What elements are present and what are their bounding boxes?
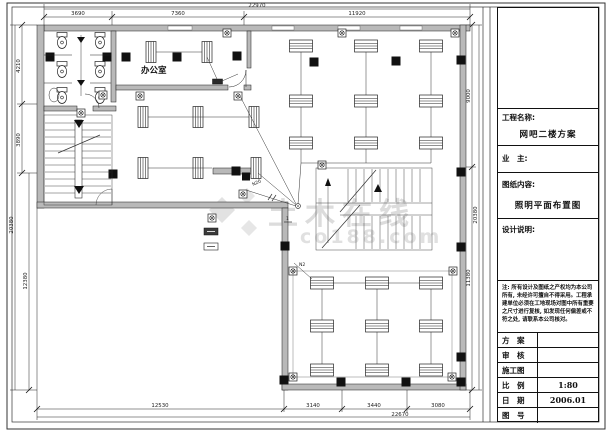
- row-scheme-label: 方 案: [498, 333, 538, 347]
- toilet-symbol: [57, 33, 67, 49]
- fluorescent-lamp: [420, 320, 443, 332]
- fluorescent-lamp: [420, 277, 443, 289]
- wall-left: [37, 25, 44, 208]
- ceiling-light-icon: [239, 190, 247, 198]
- dim-left-3: 12380: [23, 272, 29, 290]
- row-review-label: 审 核: [498, 348, 538, 362]
- row-scale: 比 例 1:80: [498, 378, 598, 393]
- fluorescent-lamp: [311, 364, 334, 376]
- row-scheme-value: [538, 333, 598, 347]
- project-name: 网吧二楼方案: [502, 128, 594, 140]
- flow-arrow: [77, 37, 85, 43]
- column: [242, 173, 250, 181]
- doors: [229, 70, 246, 87]
- dim-bottom-2: 3140: [306, 403, 320, 409]
- owner-cell: 业 主:: [498, 146, 598, 173]
- ceiling-light-icon: [99, 91, 107, 99]
- fluorescent-lamp: [355, 137, 378, 149]
- row-scheme: 方 案: [498, 333, 598, 348]
- dim-bottom-1: 12530: [151, 403, 169, 409]
- row-scale-value: 1:80: [538, 378, 598, 392]
- wall-bottom: [282, 384, 466, 390]
- row-construction-drawing: 施工图: [498, 363, 598, 378]
- toilet-symbol: [95, 33, 105, 49]
- wall-toilet-right: [111, 31, 116, 102]
- dim-right-1: 9000: [466, 89, 472, 103]
- toilet-symbol: [95, 62, 105, 78]
- stairs-left: [44, 115, 112, 205]
- fluorescent-lamp: [366, 320, 389, 332]
- fluorescent-lamp: [290, 137, 313, 149]
- column: [232, 167, 241, 176]
- ceiling-light-icon: [318, 161, 326, 169]
- column: [457, 243, 466, 252]
- fluorescent-lamp: [355, 40, 378, 52]
- dim-top-1: 3690: [71, 11, 85, 17]
- column: [337, 378, 346, 387]
- fluorescent-lamp: [311, 277, 334, 289]
- column: [233, 52, 242, 61]
- column: [109, 170, 118, 179]
- dim-left-2: 3890: [16, 133, 22, 147]
- fluorescent-lamp: [146, 42, 156, 63]
- fluorescent-lamp: [290, 95, 313, 107]
- toilet-symbol: [57, 88, 67, 104]
- fluorescent-lamp: [251, 158, 261, 179]
- dim-total-top: 22970: [248, 3, 266, 9]
- wire-label: N2: [299, 262, 305, 268]
- column: [457, 378, 466, 387]
- ceiling-light-icon: [208, 214, 216, 222]
- fluorescent-lamp: [366, 364, 389, 376]
- project-label: 工程名称:: [502, 112, 594, 123]
- fluorescent-lamp: [420, 137, 443, 149]
- circuit-number: 1: [286, 216, 289, 222]
- wall-toilet-bottom: [93, 106, 116, 111]
- flow-arrow: [77, 80, 85, 86]
- fluorescent-lamp: [420, 364, 443, 376]
- room-label-office: 办公室: [141, 65, 167, 76]
- wire-label: N20: [251, 178, 262, 187]
- wall-office-bottom: [116, 85, 228, 90]
- design-notes-label: 设计说明:: [502, 224, 594, 235]
- wall-office-right: [247, 31, 251, 68]
- row-date: 日 期 2006.01: [498, 393, 598, 408]
- design-notes-cell: 设计说明:: [498, 219, 598, 281]
- column: [457, 353, 466, 362]
- column: [173, 53, 182, 62]
- row-date-label: 日 期: [498, 393, 538, 407]
- ceiling-light-icon: [77, 109, 85, 117]
- ceiling-light-icon: [136, 92, 144, 100]
- dim-bottom-4: 3080: [431, 403, 445, 409]
- fluorescent-lamp: [202, 42, 212, 63]
- dim-top-2: 7360: [171, 11, 185, 17]
- row-scale-label: 比 例: [498, 378, 538, 392]
- fluorescent-lamp: [311, 320, 334, 332]
- door-arc: [229, 70, 246, 87]
- dim-total-left: 20380: [9, 216, 15, 234]
- stair-arrow: [325, 178, 331, 186]
- owner-label: 业 主:: [502, 153, 594, 164]
- dim-top-3: 11920: [348, 11, 366, 17]
- window: [272, 26, 294, 30]
- drawing-sheet: 土木在线 co188.com: [0, 0, 610, 432]
- fluorescent-lamp: [366, 277, 389, 289]
- column: [310, 58, 319, 67]
- column: [103, 53, 112, 62]
- title-block: 工程名称: 网吧二楼方案 业 主: 图纸内容: 照明平面布置图 设计说明: 注:…: [497, 7, 599, 422]
- row-drawing-number-value: [538, 408, 598, 423]
- ceiling-light-icon: [451, 29, 459, 37]
- ceiling-light-icon: [234, 92, 242, 100]
- watermark-diamond: [241, 220, 257, 236]
- project-name-cell: 工程名称: 网吧二楼方案: [498, 109, 598, 146]
- wall-toilet-bottom: [44, 106, 77, 111]
- row-review-value: [538, 348, 598, 362]
- content-name: 照明平面布置图: [502, 199, 594, 211]
- content-label: 图纸内容:: [502, 179, 594, 190]
- toilet-symbol: [57, 62, 67, 78]
- disclaimer-cell: 注: 所有设计及图纸之产权均为本公司所有, 未经许可擅自不得采用。工程承建单位必…: [498, 281, 598, 333]
- fluorescent-lamp: [138, 158, 148, 179]
- dim-total-bottom: 22670: [391, 412, 409, 418]
- wall-office-bottom: [244, 85, 251, 90]
- wall-lower-left: [282, 208, 288, 390]
- dim-right-2: 11380: [466, 269, 472, 287]
- stair-arrow: [374, 184, 382, 192]
- column: [46, 53, 55, 62]
- ceiling-light-icon: [338, 29, 346, 37]
- row-drawing-number-label: 图 号: [498, 408, 538, 423]
- fluorescent-lamp: [249, 107, 259, 128]
- row-construction-label: 施工图: [498, 363, 538, 377]
- watermark-url: co188.com: [300, 226, 442, 248]
- dim-left-1: 4210: [16, 59, 22, 73]
- switch-symbol: [213, 79, 223, 84]
- column: [457, 56, 466, 65]
- fluorescent-lamp: [138, 107, 148, 128]
- row-drawing-number: 图 号: [498, 408, 598, 423]
- fluorescent-lamp: [290, 40, 313, 52]
- column: [122, 53, 131, 62]
- column: [281, 242, 290, 251]
- panel-symbols: [204, 79, 223, 250]
- ceiling-light-icon: [223, 29, 231, 37]
- window: [400, 26, 422, 30]
- row-date-value: 2006.01: [538, 393, 598, 407]
- fluorescent-lamp: [420, 95, 443, 107]
- fluorescent-lamp: [420, 40, 443, 52]
- window: [168, 26, 192, 30]
- row-construction-value: [538, 363, 598, 377]
- content-cell: 图纸内容: 照明平面布置图: [498, 173, 598, 219]
- dim-total-right: 20380: [473, 206, 479, 224]
- column: [457, 168, 466, 177]
- column: [392, 57, 401, 66]
- dim-bottom-3: 3440: [367, 403, 381, 409]
- fluorescent-lamp: [355, 95, 378, 107]
- plan-labels: 办公室 N20 N2 1: [141, 65, 305, 268]
- column: [402, 378, 411, 387]
- title-block-empty-cell: [498, 8, 598, 109]
- row-review: 审 核: [498, 348, 598, 363]
- wall-right: [460, 25, 466, 390]
- column: [280, 376, 289, 385]
